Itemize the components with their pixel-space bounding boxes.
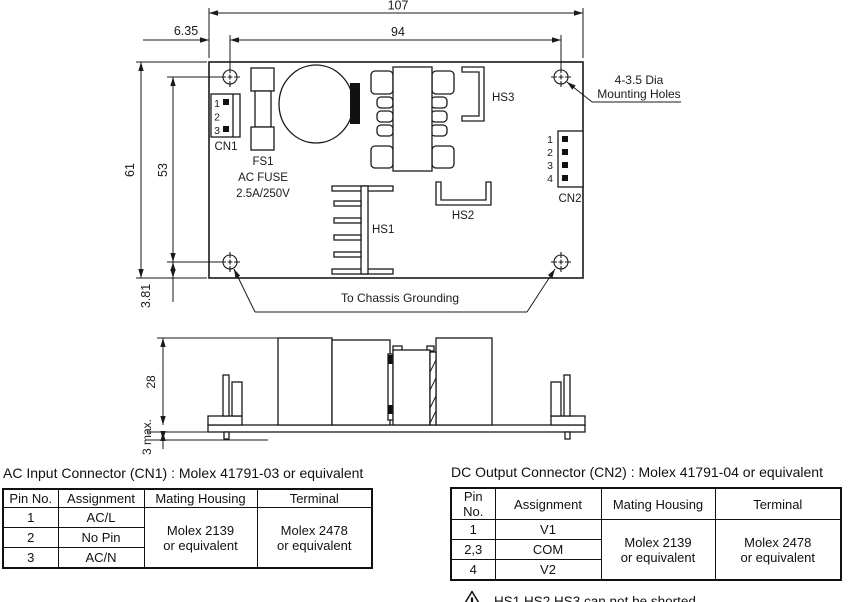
ac-header-housing: Mating Housing	[144, 489, 257, 508]
cn2-label: CN2	[558, 193, 581, 205]
dc-header-pin: Pin No.	[451, 488, 495, 520]
dc-terminal: Molex 2478 or equivalent	[715, 520, 841, 581]
warning-text: HS1,HS2,HS3 can not be shorted	[494, 594, 696, 602]
warning-icon	[459, 589, 485, 602]
ac-pin-3: 3	[3, 548, 58, 569]
ac-mating-housing: Molex 2139 or equivalent	[144, 508, 257, 569]
side-pin-left	[224, 432, 229, 439]
capacitor-marking	[350, 83, 360, 124]
dim-6-35-label: 6.35	[174, 24, 198, 38]
cn2-pin-4: 4	[547, 173, 553, 185]
dim-61	[136, 62, 207, 278]
ac-header-row: Pin No. Assignment Mating Housing Termin…	[3, 489, 372, 508]
cn2-pin-1: 1	[547, 134, 553, 146]
mounting-note-line2: Mounting Holes	[597, 87, 680, 101]
dim-94-label: 94	[391, 25, 405, 39]
dim-3-81-label: 3.81	[139, 284, 153, 308]
cn2-connector	[558, 131, 583, 187]
warning-note: HS1,HS2,HS3 can not be shorted	[459, 589, 850, 602]
side-view-labels: 28 3 max.	[140, 375, 158, 455]
side-left-bracket	[208, 375, 242, 425]
dc-table-title: DC Output Connector (CN2) : Molex 41791-…	[451, 463, 850, 481]
pcb-top-view	[136, 8, 681, 312]
ac-input-section: AC Input Connector (CN1) : Molex 41791-0…	[2, 464, 376, 569]
hs1-label: HS1	[372, 224, 394, 236]
ac-header-assignment: Assignment	[58, 489, 144, 508]
ac-header-terminal: Terminal	[257, 489, 372, 508]
ac-table-title: AC Input Connector (CN1) : Molex 41791-0…	[3, 464, 376, 482]
dim-53-label: 53	[156, 163, 170, 177]
dc-mating-housing: Molex 2139 or equivalent	[601, 520, 715, 581]
cn2-pin-3: 3	[547, 160, 553, 172]
ac-header-pin: Pin No.	[3, 489, 58, 508]
table-row: 1 V1 Molex 2139 or equivalent Molex 2478…	[451, 520, 841, 540]
side-right-bracket	[551, 375, 585, 425]
hs2-label: HS2	[452, 210, 474, 222]
fuse-rating-label: 2.5A/250V	[236, 188, 290, 200]
dim-107-label: 107	[388, 0, 409, 13]
dc-header-row: Pin No. Assignment Mating Housing Termin…	[451, 488, 841, 520]
dim-28	[157, 338, 278, 425]
ac-terminal: Molex 2478 or equivalent	[257, 508, 372, 569]
fuse-type-label: AC FUSE	[238, 172, 288, 184]
dc-header-assignment: Assignment	[495, 488, 601, 520]
dim-3-max-label: 3 max.	[140, 419, 154, 455]
hs3-label: HS3	[492, 92, 514, 104]
ac-assignment-2: No Pin	[58, 528, 144, 548]
dc-output-section: DC Output Connector (CN2) : Molex 41791-…	[450, 463, 850, 602]
dc-pin-4: 4	[451, 560, 495, 581]
mechanical-drawing: 107 94 6.35 61 53 3.81 1 2 3 CN1 FS1 AC …	[0, 0, 856, 462]
datasheet-page: 107 94 6.35 61 53 3.81 1 2 3 CN1 FS1 AC …	[0, 0, 856, 602]
side-component-block-3	[436, 338, 492, 425]
capacitor-outline	[279, 65, 353, 143]
transformer	[371, 67, 454, 171]
dc-assignment-4: V2	[495, 560, 601, 581]
ac-pin-1: 1	[3, 508, 58, 528]
dc-assignment-1: V1	[495, 520, 601, 540]
side-pcb-board	[208, 425, 585, 432]
ac-assignment-3: AC/N	[58, 548, 144, 569]
side-transformer	[388, 346, 436, 425]
cn1-pin-3: 3	[214, 125, 220, 137]
table-row: 1 AC/L Molex 2139 or equivalent Molex 24…	[3, 508, 372, 528]
side-pin-right	[565, 432, 570, 439]
cn1-pin-1: 1	[214, 98, 220, 110]
ac-pin-2: 2	[3, 528, 58, 548]
grounding-note: To Chassis Grounding	[341, 291, 459, 305]
cn1-pin-2: 2	[214, 112, 220, 124]
dc-output-table: Pin No. Assignment Mating Housing Termin…	[450, 487, 842, 581]
dim-3-max	[147, 432, 268, 449]
dc-header-housing: Mating Housing	[601, 488, 715, 520]
side-component-block-1	[278, 338, 332, 425]
dim-61-label: 61	[123, 163, 137, 177]
dc-pin-23: 2,3	[451, 540, 495, 560]
fs1-fuse	[251, 68, 274, 150]
dim-28-label: 28	[144, 375, 158, 389]
mounting-note-line1: 4-3.5 Dia	[615, 73, 664, 87]
fs1-label: FS1	[252, 156, 273, 168]
dc-pin-1: 1	[451, 520, 495, 540]
dc-assignment-23: COM	[495, 540, 601, 560]
cn1-label: CN1	[214, 141, 237, 153]
dc-header-terminal: Terminal	[715, 488, 841, 520]
ac-input-table: Pin No. Assignment Mating Housing Termin…	[2, 488, 373, 569]
cn2-pin-2: 2	[547, 147, 553, 159]
ac-assignment-1: AC/L	[58, 508, 144, 528]
pcb-side-view	[147, 338, 585, 449]
side-component-block-2	[332, 340, 390, 425]
